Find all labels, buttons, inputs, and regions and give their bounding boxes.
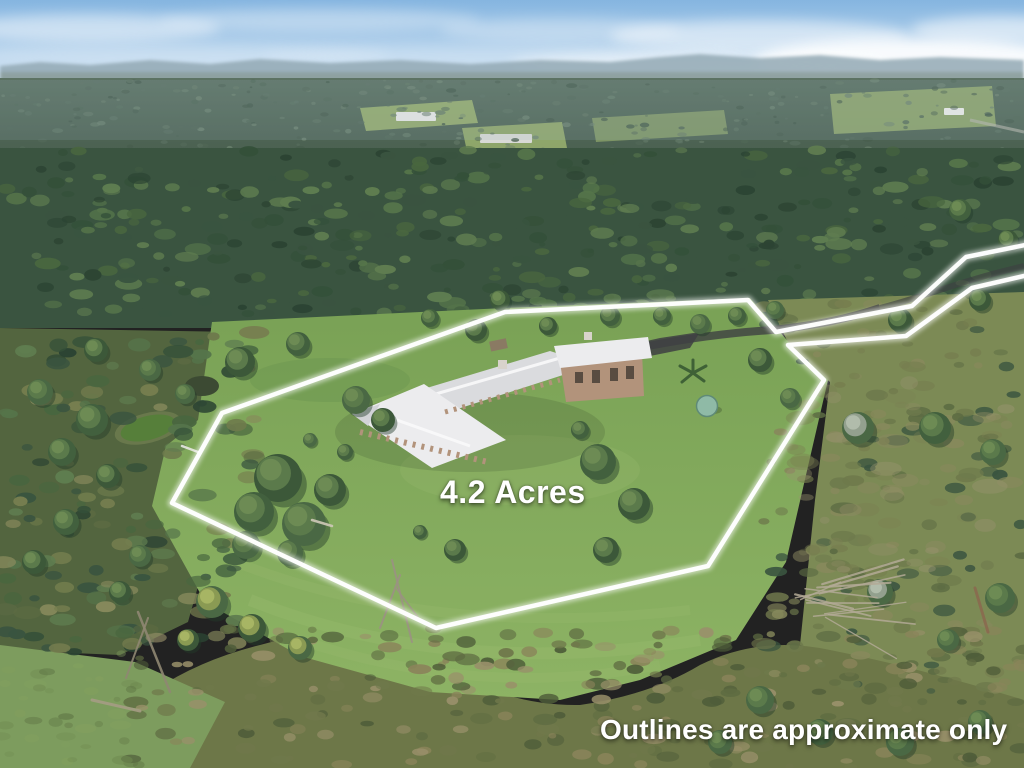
window [626, 366, 634, 379]
window [610, 368, 618, 381]
aerial-property-photo: 4.2 Acres Outlines are approximate only [0, 0, 1024, 768]
atmospheric-haze [0, 80, 1024, 140]
disclaimer-label: Outlines are approximate only [600, 716, 1007, 744]
window [592, 370, 600, 383]
area-label: 4.2 Acres [440, 476, 586, 508]
window [575, 372, 583, 383]
photo-scene [0, 0, 1024, 768]
chimney [584, 332, 592, 340]
chimney [498, 360, 507, 369]
tank-body [697, 396, 718, 417]
